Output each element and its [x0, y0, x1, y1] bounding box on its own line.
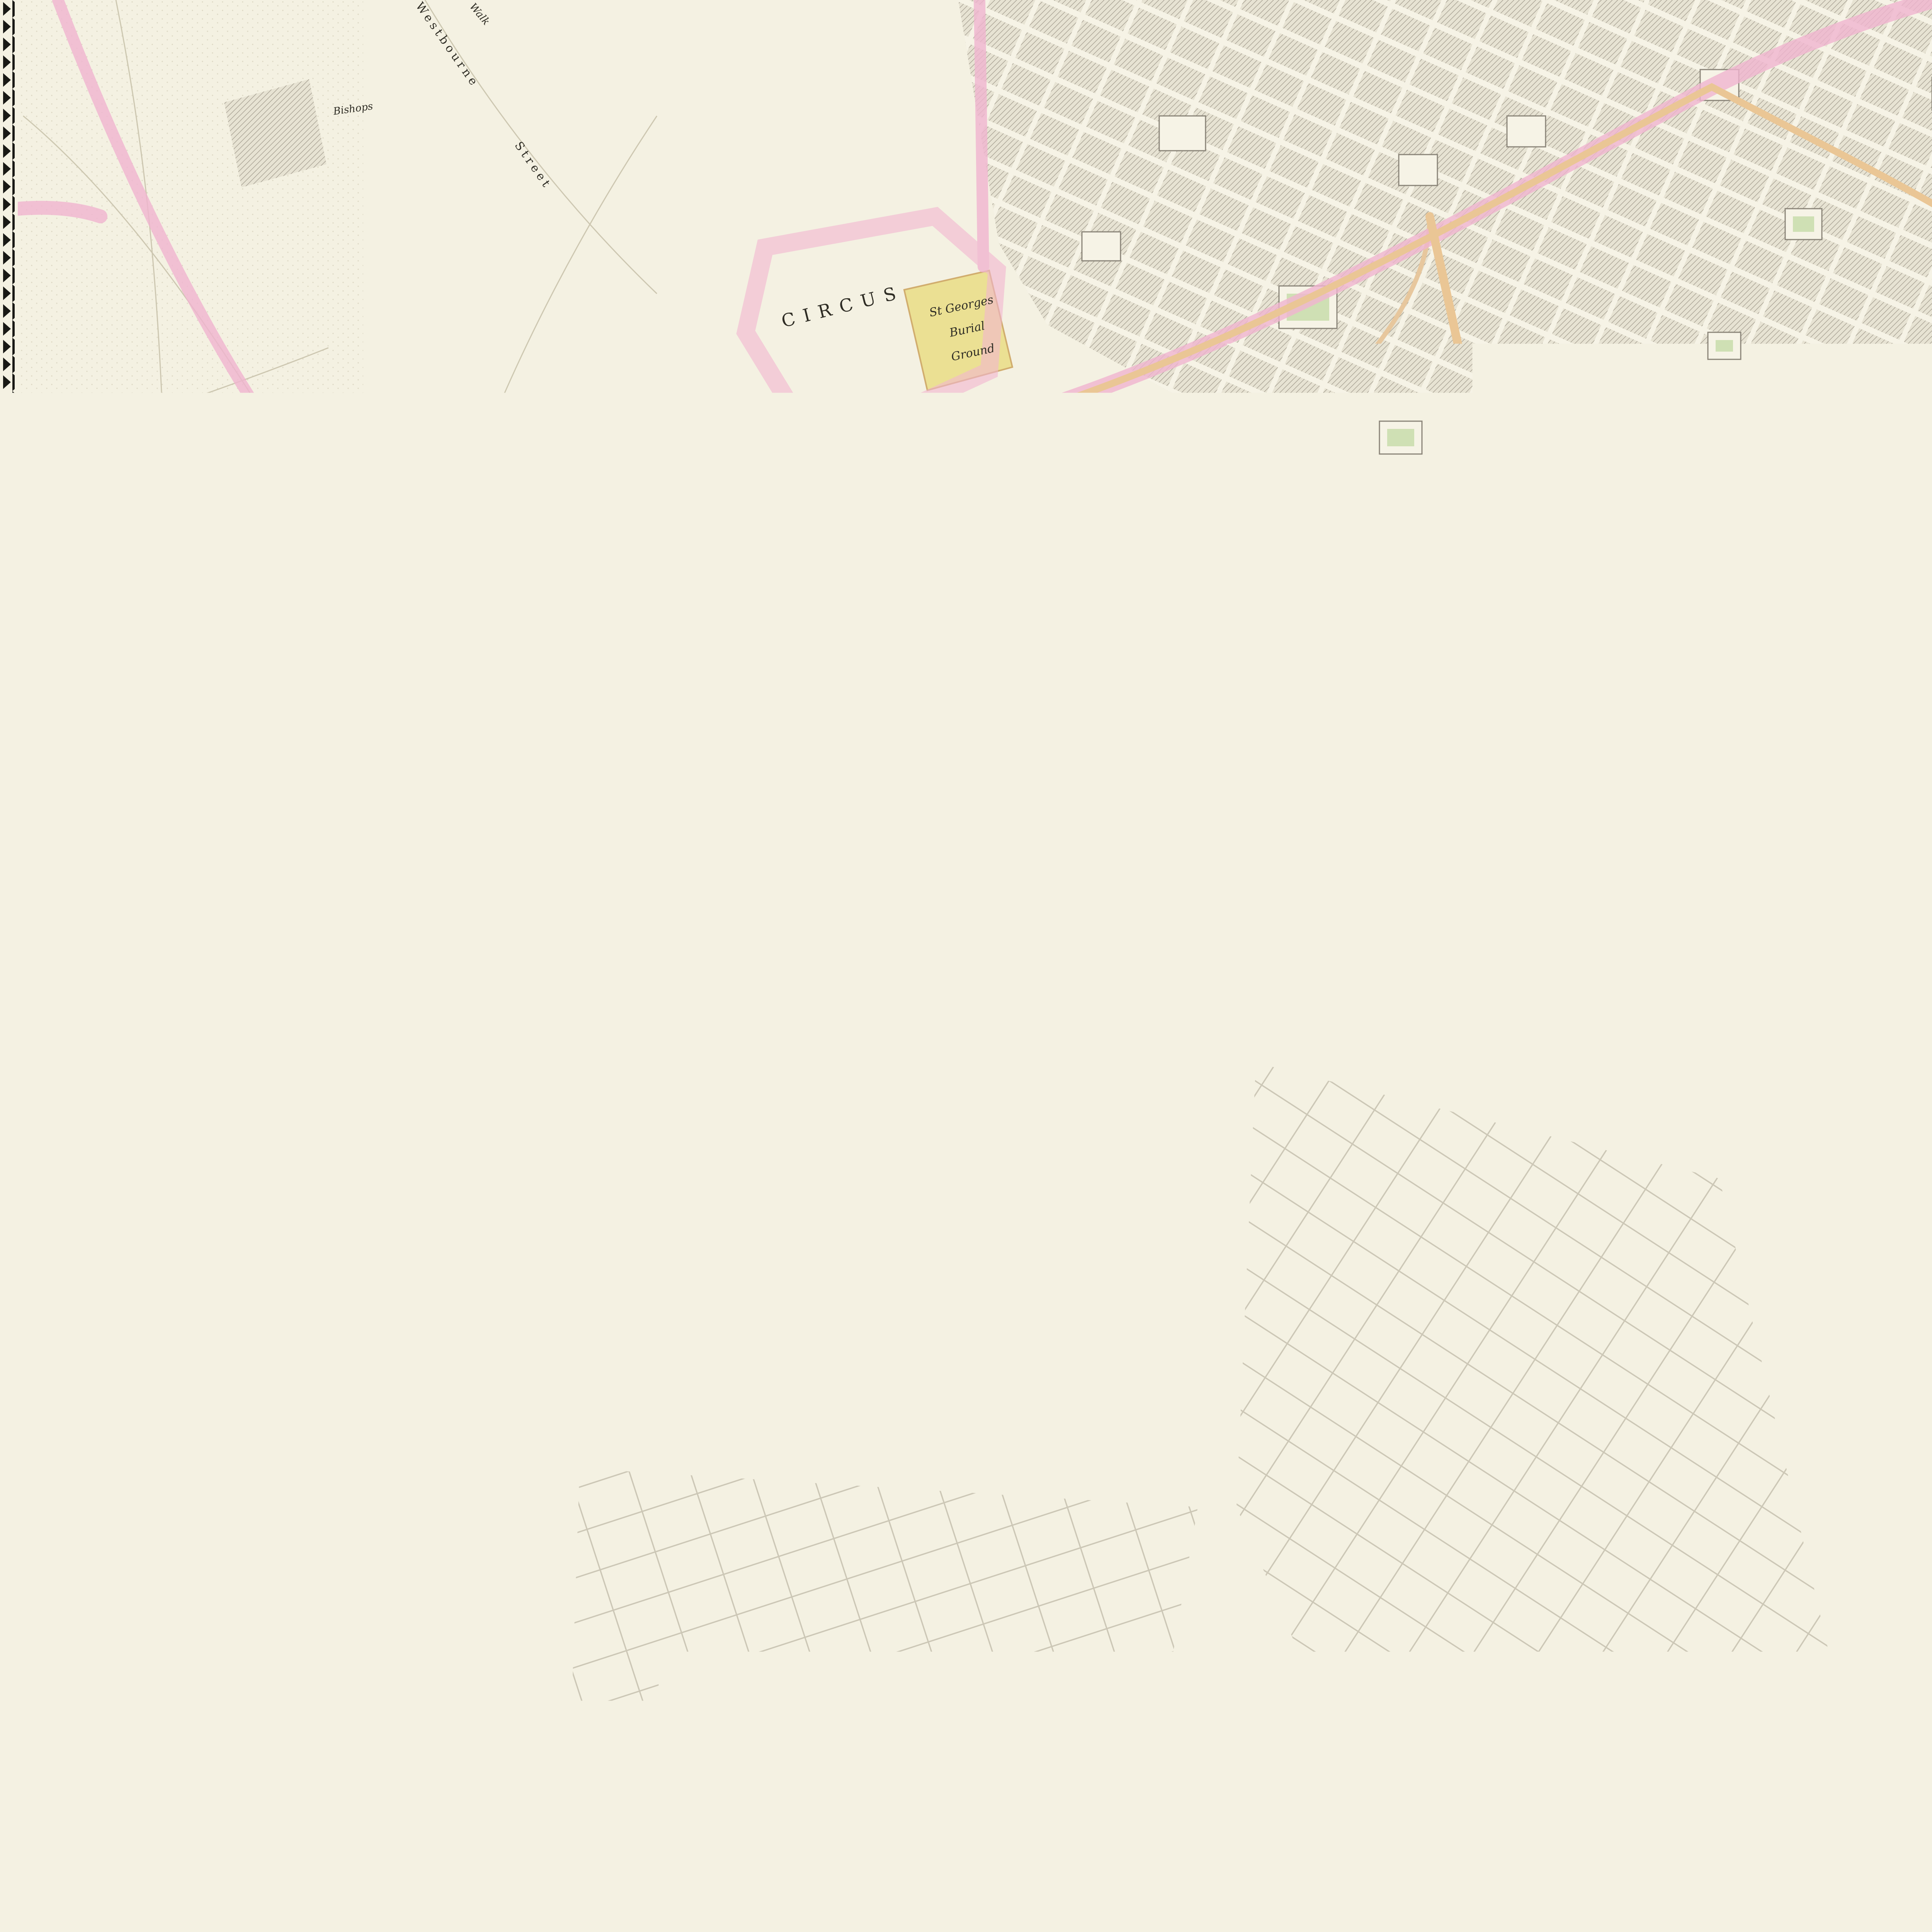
label-plate-43: 43: [772, 859, 836, 913]
reservoir: [1321, 510, 1368, 556]
label-plate-35: 35: [799, 1876, 858, 1926]
hospital-court: [1113, 1801, 1198, 1862]
label-plate-37: 37: [1650, 776, 1712, 828]
label-plate-38: 38: [1841, 536, 1895, 582]
label-earls-court: Earls Court: [128, 1477, 208, 1490]
label-kensington-palace-1: Kensington: [265, 756, 323, 768]
label-kensington-palace-2: Palace: [274, 769, 307, 780]
label-plate-36: 36: [1317, 1366, 1376, 1416]
label-the-ring-2: Ring: [1011, 594, 1039, 608]
map-sheet: KENSINGTON GARDENS HYDE PARK SERPENTINE …: [0, 0, 1932, 1932]
label-life-guards-1: Life Guards: [1376, 880, 1426, 889]
label-part-kensington-2: Parish: [1140, 1905, 1178, 1920]
label-plate-33: 33: [258, 1317, 317, 1367]
label-life-guards-2: Barracks: [1381, 890, 1420, 900]
label-the-ring-1: The: [1004, 550, 1026, 563]
london-map-1820s: KENSINGTON GARDENS HYDE PARK SERPENTINE …: [0, 0, 1932, 1932]
label-basin-pimlico: Basin: [1648, 1315, 1679, 1327]
